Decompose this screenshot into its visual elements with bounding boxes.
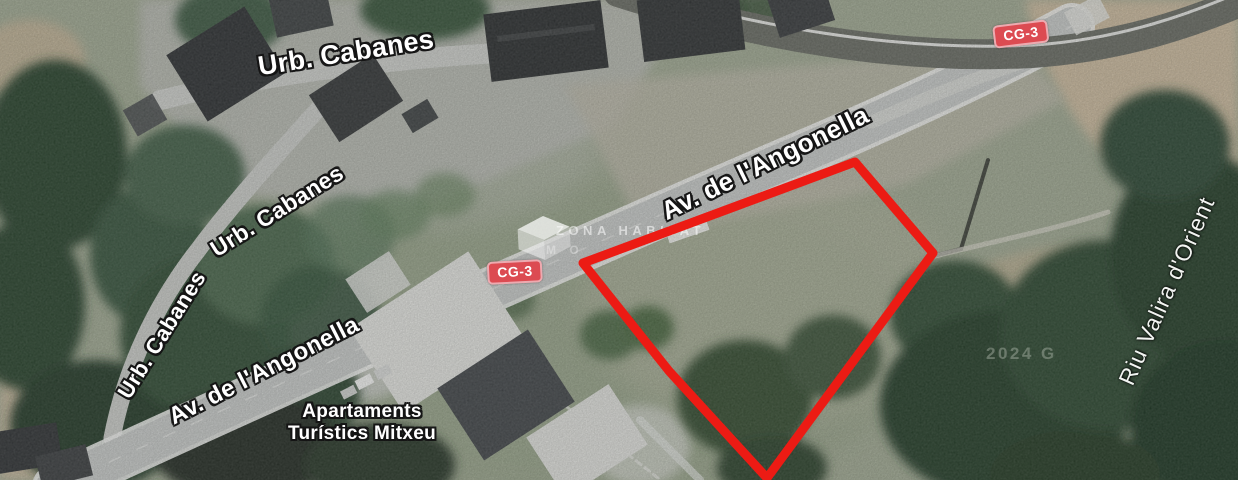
- place-label-line2: Turístics Mitxeu: [288, 423, 436, 445]
- watermark-text-2: M O: [546, 243, 584, 257]
- place-label-line1: Apartaments: [288, 401, 436, 423]
- satellite-map[interactable]: ZONA HABITAT M O Urb. Cabanes Urb. Caban…: [0, 0, 1238, 480]
- watermark-text: ZONA HABITAT: [556, 223, 705, 238]
- imagery-credit: 2024 G: [986, 344, 1057, 364]
- route-badge-cg3-mid: CG-3: [487, 259, 544, 285]
- place-label-apartaments: Apartaments Turístics Mitxeu: [288, 401, 436, 445]
